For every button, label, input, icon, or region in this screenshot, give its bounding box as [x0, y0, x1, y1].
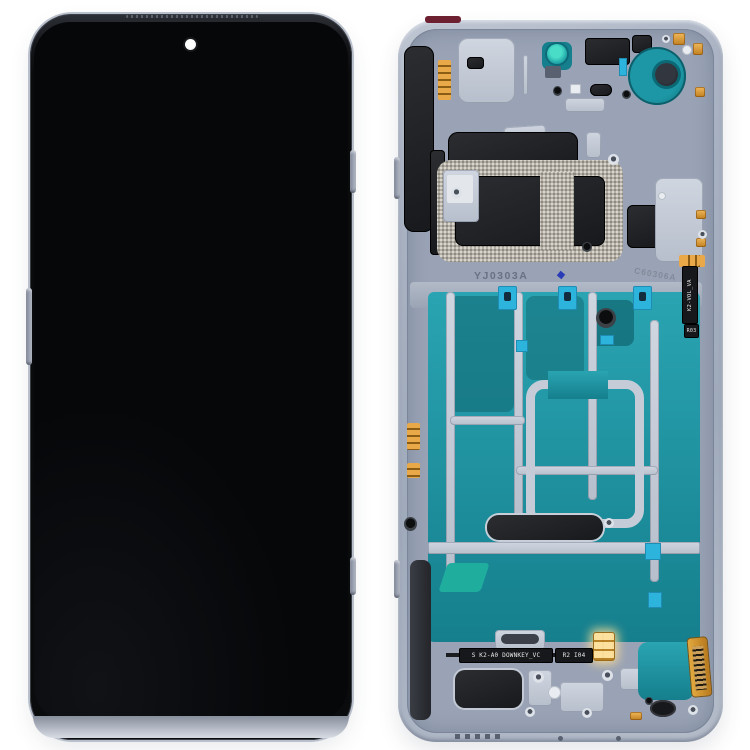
bracket-slot — [523, 55, 528, 95]
bottom-port-hole — [616, 736, 621, 741]
frame-side-key-lower — [394, 560, 400, 598]
screw-bottom-3 — [525, 707, 535, 717]
spring-contact-stack — [438, 60, 451, 100]
antenna-black-strip — [410, 560, 431, 720]
gold-pad-top-3 — [695, 87, 705, 97]
white-chip — [570, 84, 581, 94]
mid-bracket-1 — [565, 98, 605, 112]
frame-code-stamp: YJ0303A — [474, 270, 528, 282]
heat-pipe-routing-loop — [526, 380, 644, 528]
top-left-bracket-plate — [458, 38, 515, 103]
screw-mid-4 — [698, 230, 707, 239]
channel-vertical-2 — [514, 292, 523, 522]
channel-vertical-1 — [446, 292, 455, 582]
side-key-left — [26, 288, 32, 365]
volume-flex-label: K2-VOL_VA — [683, 267, 697, 323]
gold-pad-top-2 — [693, 43, 703, 55]
tape-tab-near-disc — [619, 58, 627, 76]
right-side-plate — [655, 178, 703, 262]
gold-pad-mid-1 — [696, 210, 706, 219]
sensor-dot-1 — [553, 86, 562, 96]
white-dot-sticker-bottom — [548, 686, 561, 699]
screw-bottom-2 — [602, 670, 613, 681]
screw-mid-2 — [608, 154, 619, 165]
volume-flex-gold-pads — [683, 255, 700, 266]
screw-mid-3 — [582, 242, 592, 252]
screw-mid-1 — [451, 187, 462, 198]
channel-horizontal-1 — [450, 416, 525, 425]
slot-plate-opening — [501, 634, 539, 644]
adhesive-tab-hole-3 — [639, 292, 646, 301]
screw-bottom-5 — [645, 697, 653, 705]
gold-pad-top-1 — [673, 33, 685, 45]
graphite-shade-1 — [450, 296, 514, 412]
screw-bottom-4 — [582, 708, 592, 718]
gold-pad-bottom — [630, 712, 642, 720]
top-edge-red-component — [425, 16, 461, 23]
sensor-oval — [590, 84, 612, 96]
white-dot-sticker-top — [682, 45, 692, 55]
bottom-right-teal-patch — [638, 642, 694, 700]
side-key-upper-right — [350, 150, 356, 193]
screw-bottom-6 — [688, 705, 698, 715]
tape-bit-1 — [516, 340, 528, 352]
lcd-screen-off — [34, 22, 348, 722]
middle-frame-back: YJ0303A C60306A K2-VOL_VA R03 S K2-A0 DO… — [398, 20, 723, 742]
tape-bit-4 — [648, 592, 662, 608]
bottom-mic-hole — [558, 736, 563, 741]
tape-bit-2 — [600, 335, 614, 345]
gold-pad-left-frame-2 — [407, 463, 420, 478]
grommet-hole-on-film — [596, 308, 616, 328]
graphite-bar-on-film — [487, 515, 603, 540]
camera-disc-hole — [655, 63, 678, 86]
adhesive-tab-hole-2 — [564, 292, 571, 301]
camera-bracket — [545, 66, 561, 78]
earpiece-grille-dots — [126, 15, 258, 18]
frame-side-key-upper — [394, 157, 400, 199]
gasket-step — [540, 172, 574, 250]
tape-bit-3 — [645, 543, 661, 560]
screw-on-film — [604, 518, 614, 528]
gold-pad-mid-2 — [696, 238, 706, 247]
adhesive-tab-hole-1 — [504, 292, 511, 301]
front-camera-punch-hole — [185, 39, 196, 50]
bottom-chin-frame — [33, 716, 349, 738]
screw-top-1 — [662, 35, 670, 43]
bottom-speaker-slots — [455, 734, 503, 739]
volume-flex-code: R03 — [685, 325, 698, 337]
gold-pad-left-frame-1 — [407, 423, 420, 450]
side-key-lower-right — [350, 557, 356, 595]
loudspeaker-mesh — [455, 670, 522, 708]
bottom-bracket-2 — [560, 682, 604, 712]
screw-bottom-1 — [533, 672, 544, 683]
metal-bracket-small — [586, 132, 601, 158]
routing-loop-gap — [548, 371, 608, 399]
screw-top-2 — [622, 90, 631, 99]
front-camera-lens-film — [547, 44, 567, 64]
white-dot-sticker-mid — [658, 192, 666, 200]
screw-left-frame — [404, 517, 417, 531]
bracket-plate-hole — [467, 57, 484, 69]
front-lcd-assembly — [30, 14, 352, 740]
mic-grommet — [650, 700, 676, 717]
downkey-flex-label: S K2-A0 DOWNKEY_VC — [460, 649, 552, 662]
flash-led-grid — [593, 632, 615, 661]
downkey-flex-code: R2 I04 — [556, 649, 592, 662]
